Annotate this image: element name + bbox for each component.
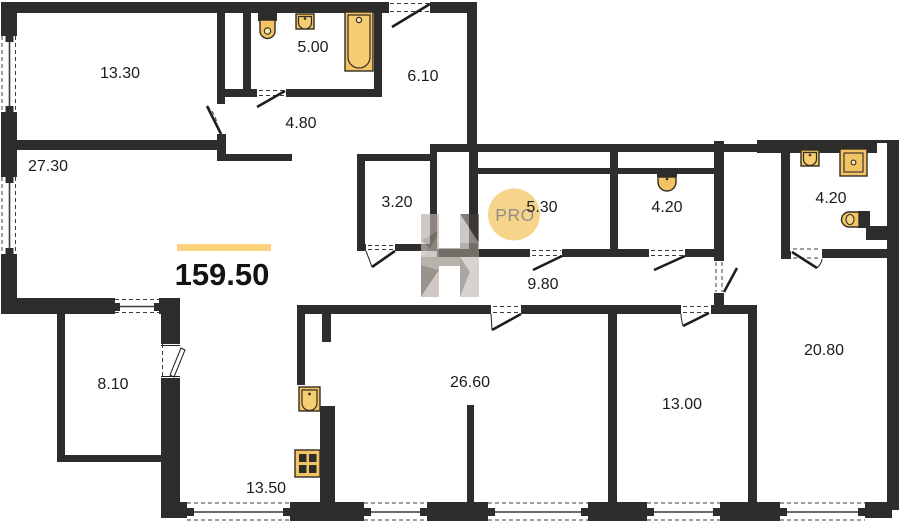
svg-text:13.00: 13.00 [662,396,702,413]
svg-text:159.50: 159.50 [175,257,270,292]
svg-text:8.10: 8.10 [97,376,128,393]
svg-text:26.60: 26.60 [450,374,490,391]
svg-text:5.00: 5.00 [297,39,328,56]
svg-text:4.80: 4.80 [285,115,316,132]
svg-text:13.50: 13.50 [246,480,286,497]
svg-text:5.30: 5.30 [526,199,557,216]
svg-text:6.10: 6.10 [407,68,438,85]
svg-text:4.20: 4.20 [815,190,846,207]
svg-text:20.80: 20.80 [804,342,844,359]
svg-text:3.20: 3.20 [381,194,412,211]
svg-text:27.30: 27.30 [28,158,68,175]
svg-text:13.30: 13.30 [100,65,140,82]
svg-text:4.20: 4.20 [651,199,682,216]
svg-text:9.80: 9.80 [527,276,558,293]
